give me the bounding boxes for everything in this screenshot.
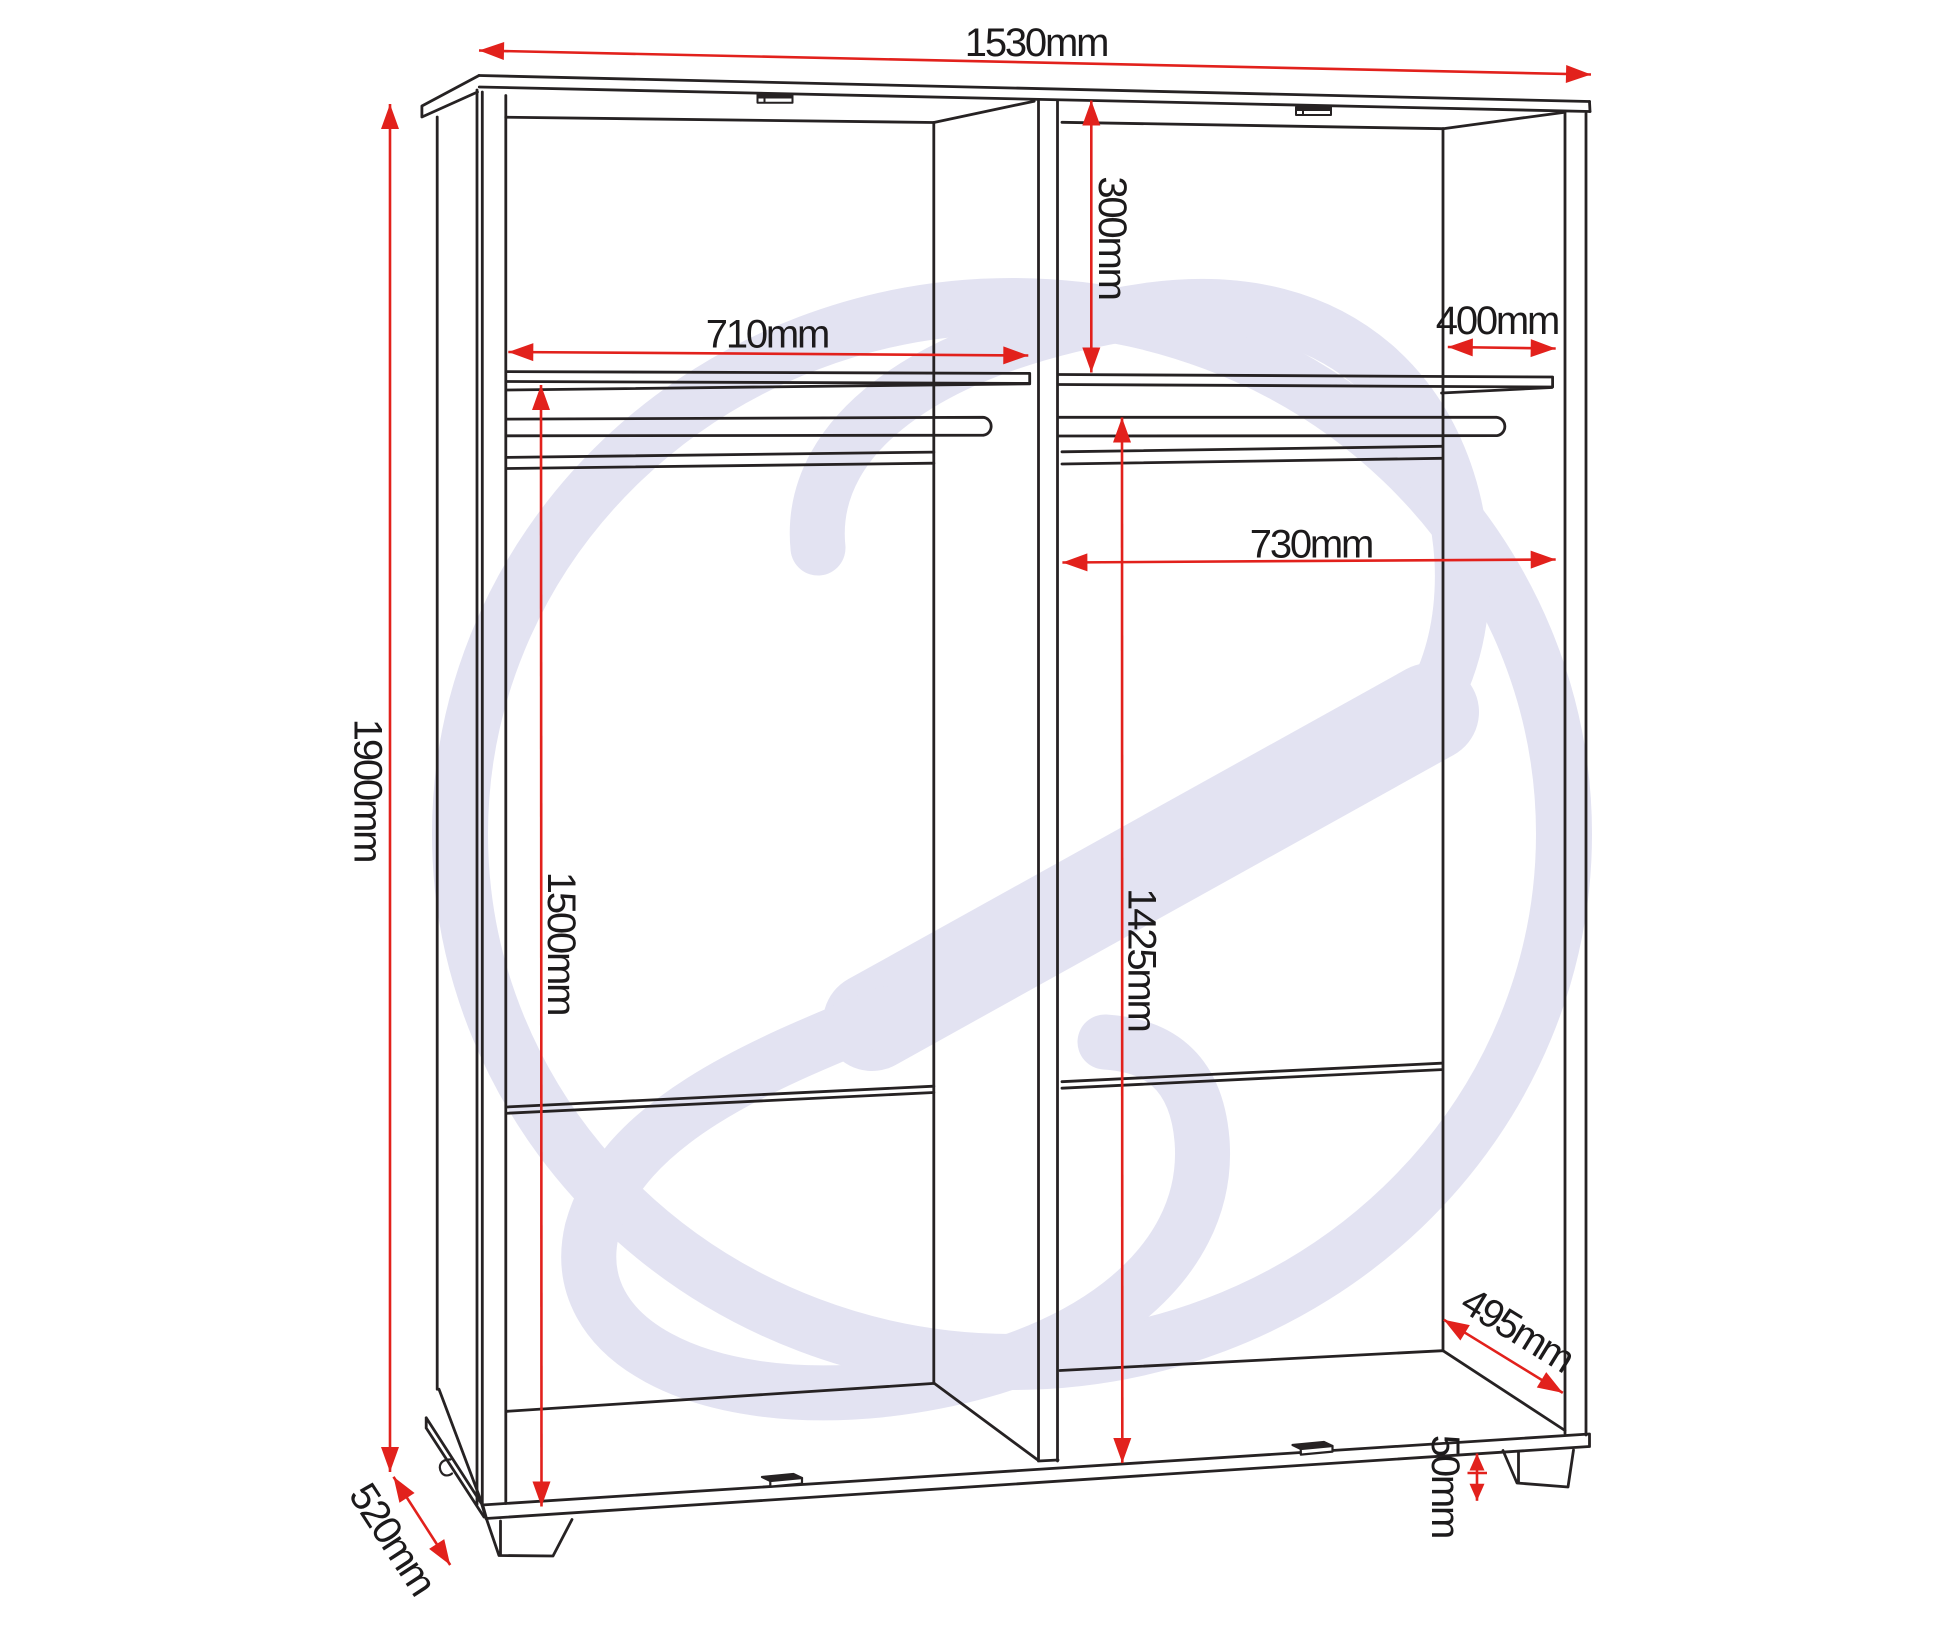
svg-text:1500mm: 1500mm: [539, 872, 583, 1014]
svg-text:710mm: 710mm: [706, 313, 828, 357]
svg-text:520mm: 520mm: [340, 1476, 444, 1603]
svg-text:300mm: 300mm: [1090, 176, 1134, 298]
svg-text:400mm: 400mm: [1436, 299, 1558, 343]
svg-text:1900mm: 1900mm: [346, 719, 390, 861]
svg-text:1530mm: 1530mm: [965, 21, 1107, 65]
svg-text:730mm: 730mm: [1250, 523, 1372, 567]
svg-text:50mm: 50mm: [1423, 1435, 1467, 1537]
svg-text:1425mm: 1425mm: [1120, 888, 1164, 1030]
